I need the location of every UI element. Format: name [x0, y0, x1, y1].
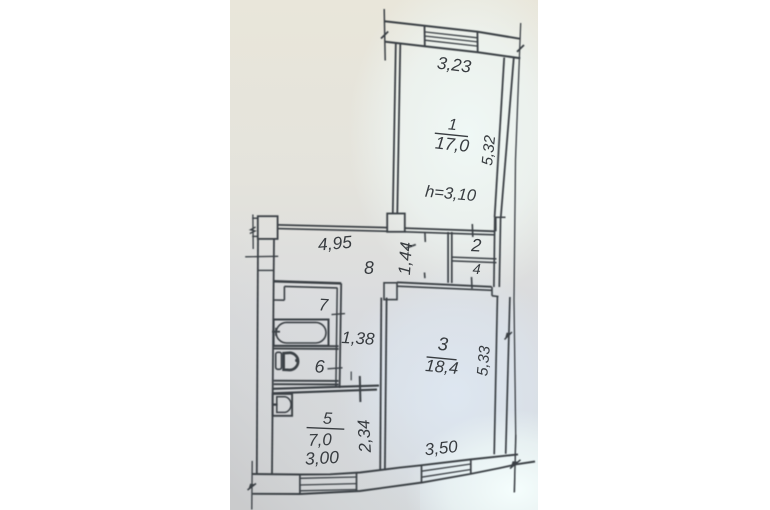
svg-text:8: 8 [363, 258, 374, 278]
svg-text:5,32: 5,32 [479, 134, 499, 166]
svg-text:7: 7 [318, 295, 329, 314]
svg-text:3,23: 3,23 [436, 53, 473, 77]
svg-text:4: 4 [472, 262, 481, 278]
svg-text:5,33: 5,33 [474, 345, 494, 377]
svg-text:1: 1 [447, 116, 457, 134]
svg-text:1,38: 1,38 [341, 328, 376, 349]
svg-text:1,44: 1,44 [395, 241, 416, 275]
svg-text:2,34: 2,34 [354, 419, 375, 454]
svg-text:5: 5 [323, 410, 334, 428]
svg-text:18,4: 18,4 [425, 356, 460, 378]
svg-text:3,00: 3,00 [304, 447, 339, 469]
svg-text:3,50: 3,50 [424, 437, 459, 459]
svg-text:17,0: 17,0 [434, 132, 470, 155]
svg-text:4,95: 4,95 [317, 232, 353, 255]
svg-text:6: 6 [314, 356, 326, 376]
svg-text:2: 2 [470, 235, 482, 256]
